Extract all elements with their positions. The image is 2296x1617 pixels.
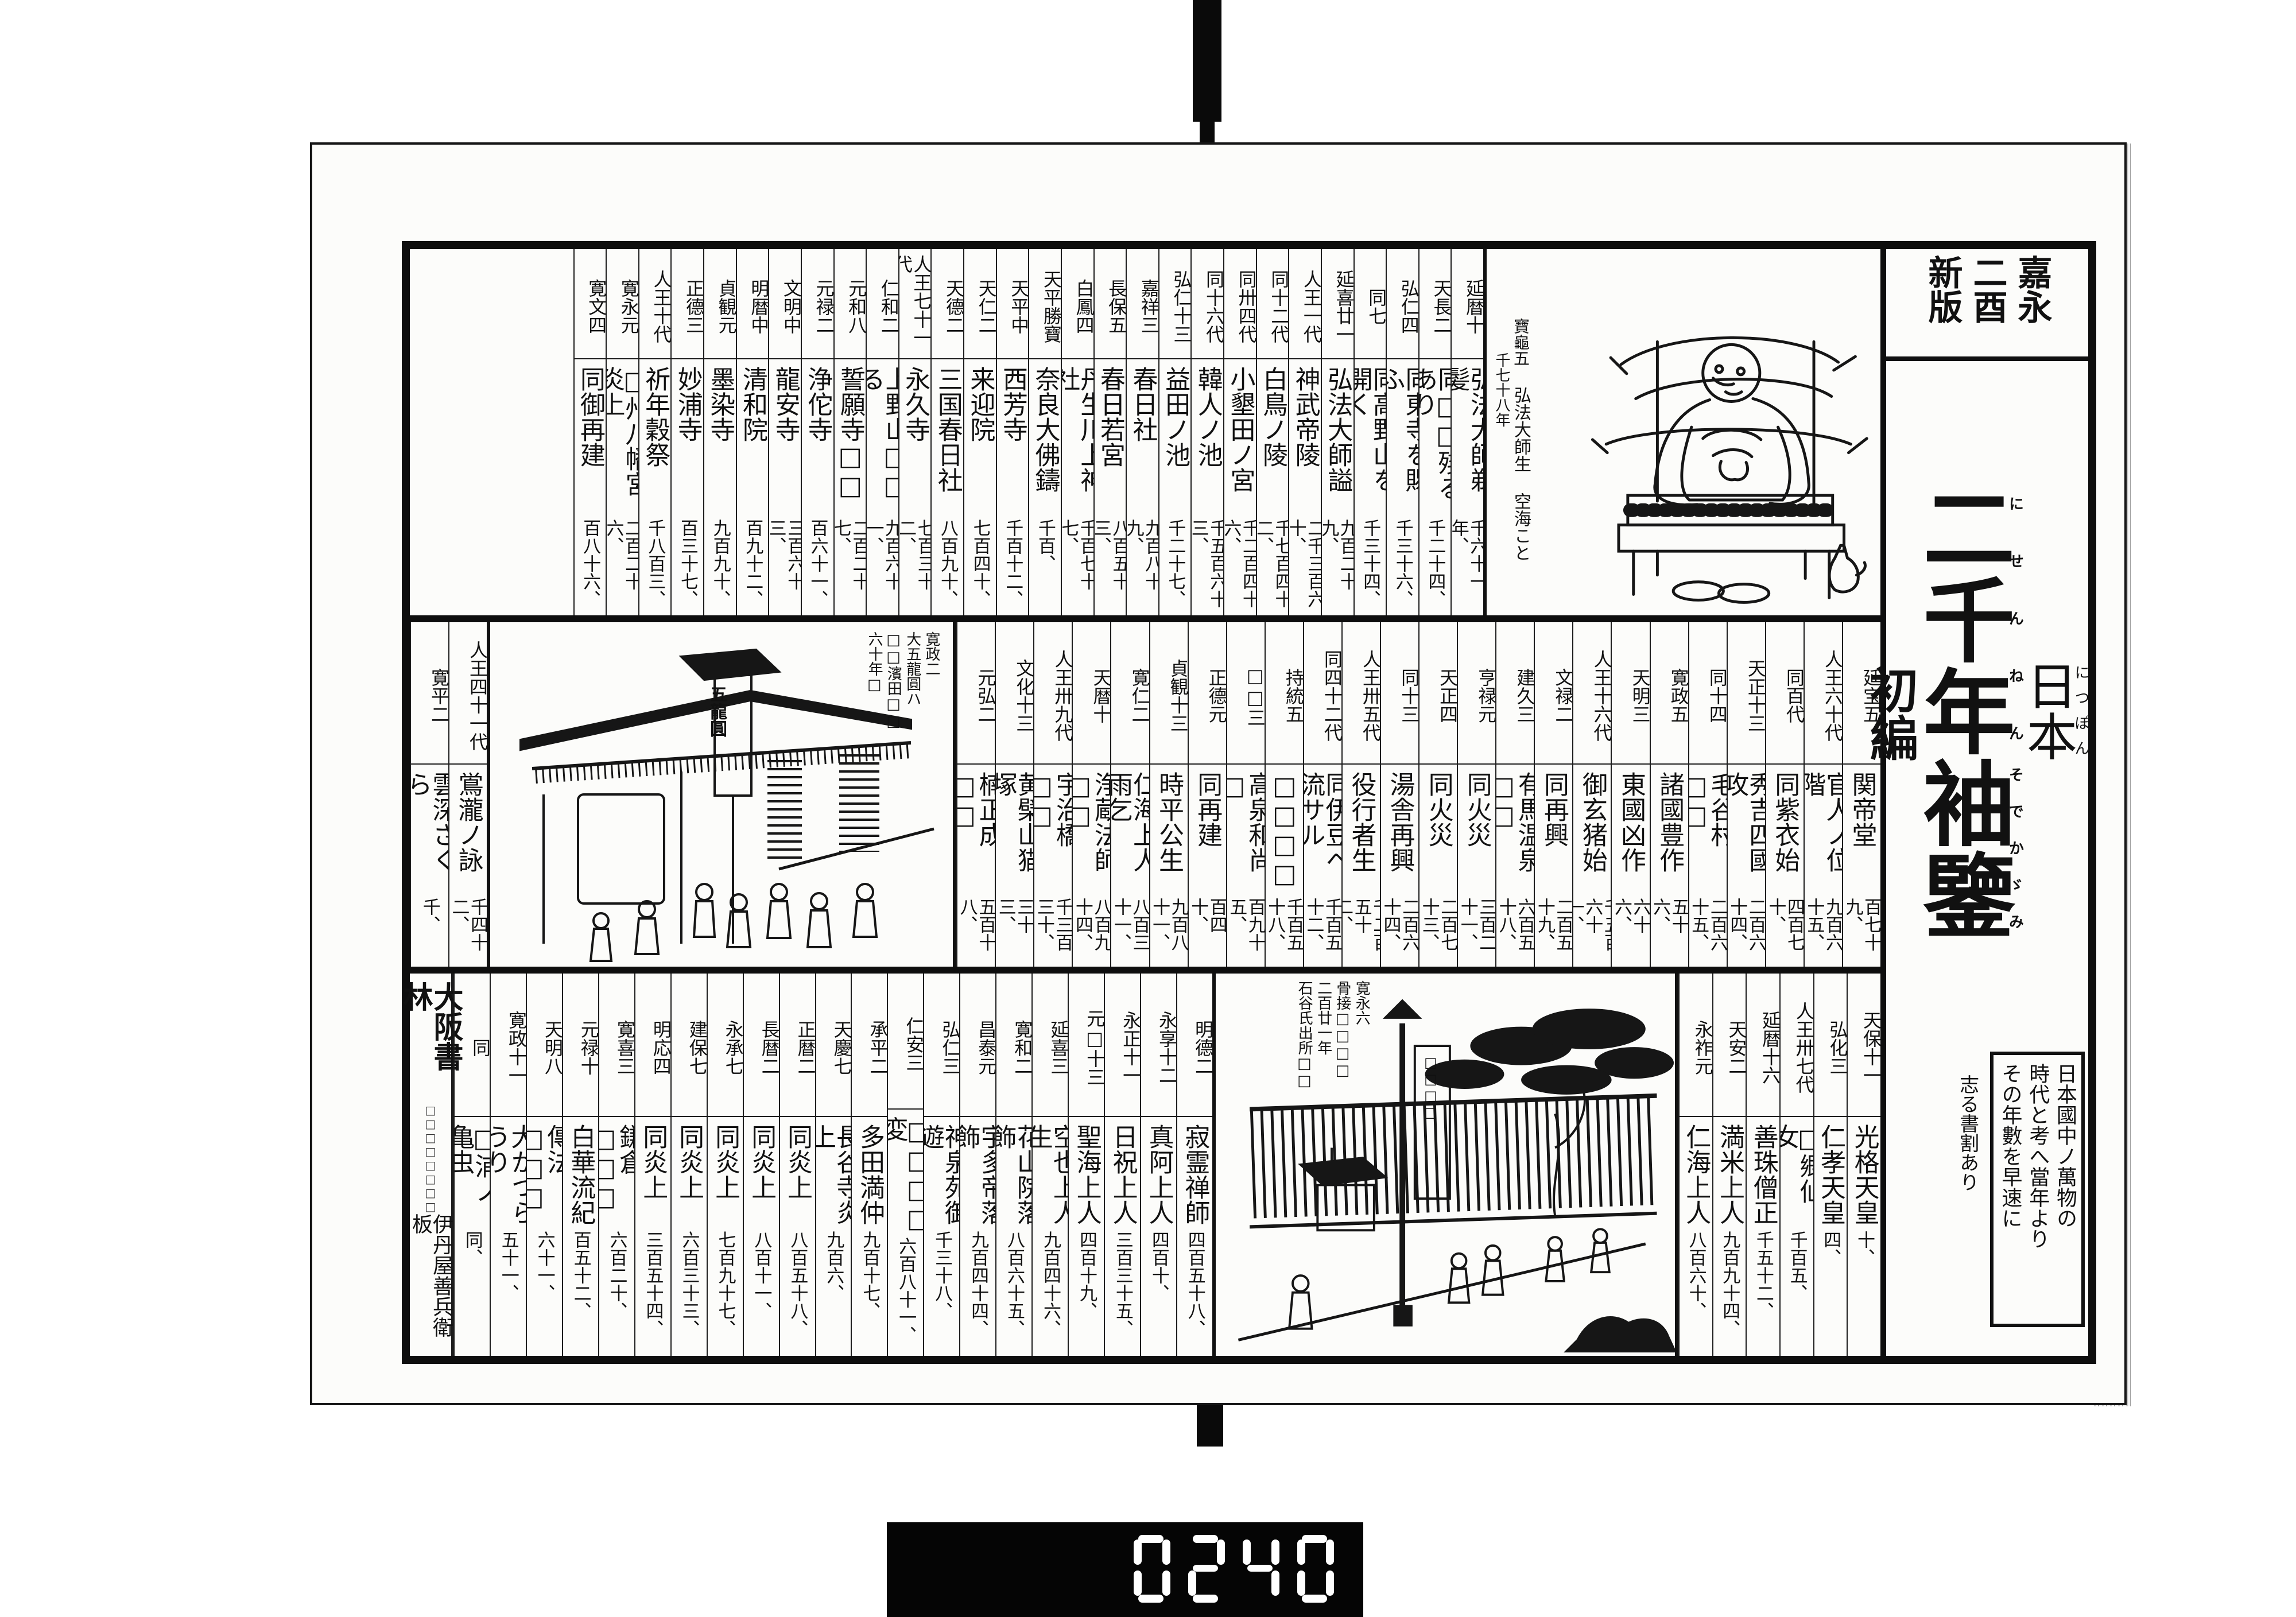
chronology-column: 同十三 湯舎再興 二百六十四、 <box>1380 622 1418 967</box>
column-entry: 永久寺 <box>902 359 928 515</box>
column-years: 千二百四十六、 <box>1223 515 1256 615</box>
column-era: 天安二 <box>1713 974 1746 1117</box>
column-era: 弘化三 <box>1814 974 1847 1117</box>
chronology-column: 天明三 東國凶作 六十六、 <box>1611 622 1649 967</box>
column-era: 正德元 <box>1189 622 1226 765</box>
column-years: 二百五十九、 <box>1535 894 1572 967</box>
column-entry: 清和院 <box>740 359 765 515</box>
column-entry: 宇多帝落飾 <box>959 1117 995 1227</box>
column-era: 貞観元 <box>704 249 736 359</box>
chronology-column: 天德二 三国春日社 八百九十、 <box>930 249 963 615</box>
column-entry: 東國凶作 <box>1618 765 1643 894</box>
chronology-column: 文禄二 同再興 二百五十九、 <box>1534 622 1572 967</box>
chronology-column: 文明中 龍安寺 三百六十三、 <box>768 249 801 615</box>
column-era: 人王卅五代 <box>1343 622 1380 765</box>
column-era: 天暦十 <box>1073 622 1110 765</box>
shop-sign: 五龍圓 <box>704 685 729 737</box>
figure-caption: 寶龜五 弘法大師生 空海こと 千七十八年 <box>1492 318 1530 615</box>
column-entry: 雲深さくら <box>410 765 448 894</box>
column-years: 八百六十五、 <box>1004 1227 1023 1356</box>
column-era: 同十六代 <box>1192 249 1223 359</box>
chronology-column: 明暦中 清和院 百九十二、 <box>736 249 769 615</box>
column-entry: 龍安寺 <box>773 359 798 515</box>
column-entry: 春日社 <box>1130 359 1155 515</box>
column-entry: 神泉苑御遊 <box>923 1117 959 1227</box>
column-era: 延暦十六 <box>1747 974 1779 1117</box>
publisher-seller: 伊丹屋善兵衛板 <box>410 1213 451 1356</box>
chronology-column: 永享十二 真阿上人 四百十、 <box>1140 974 1176 1356</box>
column-years: 九百八十一、 <box>1150 894 1188 967</box>
chronology-column: 天保十一 光格天皇 十、 <box>1847 974 1880 1356</box>
column-years: 四百七十、 <box>1766 894 1804 967</box>
column-entry: 宇治橋□□ <box>1033 765 1072 894</box>
column-entry: 神武帝陵 <box>1293 359 1318 515</box>
edition-box-line: 二酉 <box>1970 255 2004 356</box>
column-entry: 官人ノ位階 <box>1804 765 1842 894</box>
column-entry: 同御再建 <box>577 359 603 515</box>
microfilm-scan: 嘉永 二酉 新版 日本につぽん 二千年にせんねん袖鑒そでかゞみ 初編 日本國中ノ… <box>0 0 2296 1617</box>
chronology-column: 寛仁二 仁海上人雨乞 八百三十一、 <box>1110 622 1149 967</box>
chronology-column: 貞観元 墨染寺 九百九十、 <box>703 249 736 615</box>
frame-counter-digits <box>887 1522 1363 1617</box>
chronology-column: 嘉祥三 春日社 九百八十九、 <box>1126 249 1158 615</box>
column-era: 天長二 <box>1420 249 1451 359</box>
column-entry: 湯舎再興 <box>1387 765 1413 894</box>
chronology-column: 元禄十 白華流紀 百五十二、 <box>562 974 598 1356</box>
chronology-column: 正德三 妙浦寺 百三十七、 <box>670 249 703 615</box>
column-entry: 善珠僧正 <box>1751 1117 1776 1227</box>
shop-captions: 寛政二 大五龍圓ハ □□濱田□□ 六十年□ <box>866 631 939 730</box>
chronology-column: 人王四十一代 鴬瀧ノ詠 千四十二、 <box>448 622 487 967</box>
garden-illustration: 寛永六 骨接□□□□ 二百廿一年 石谷氏出所□□ □□□□ <box>1212 974 1678 1356</box>
chronology-column: 寛政十一 大かつらうり 五十一、 <box>490 974 526 1356</box>
column-era: 永正十一 <box>1105 974 1140 1117</box>
printed-frame: 嘉永 二酉 新版 日本につぽん 二千年にせんねん袖鑒そでかゞみ 初編 日本國中ノ… <box>402 241 2096 1364</box>
column-era: 弘仁十三 <box>1159 249 1191 359</box>
column-years: 四百十、 <box>1149 1227 1168 1356</box>
figure-caption-years: 千七十八年 <box>1493 352 1510 427</box>
column-era: 天德二 <box>932 249 963 359</box>
columns-middle-left: 人王四十一代 鴬瀧ノ詠 千四十二、 寛平二 雲深さくら 千、 <box>410 622 487 967</box>
chronology-column: 元□十三 聖海上人 四百十九、 <box>1068 974 1104 1356</box>
band-bottom: 天保十一 光格天皇 十、 弘化三 仁孝天皇 四、 人王卅七代 □郷仙女 千百五、… <box>410 974 1880 1356</box>
chronology-column: 永祚元 仁海上人 八百六十、 <box>1678 974 1712 1356</box>
column-years: 三百二十一、 <box>1458 894 1495 967</box>
column-entry: 同伊豆ヘ流サル <box>1303 765 1341 894</box>
chronology-column: 長保五 春日若宮 八百五十三、 <box>1093 249 1126 615</box>
column-years: 千三百三十、 <box>1034 894 1072 967</box>
column-era: 人王六十代 <box>1805 622 1842 765</box>
note-line: その年數を早速に <box>1999 1063 2021 1316</box>
column-years: 千二十四、 <box>1426 515 1445 615</box>
column-era: 元禄二 <box>802 249 833 359</box>
column-era: 正暦二 <box>780 974 815 1117</box>
column-era: 明德二 <box>1177 974 1212 1117</box>
column-entry: 上野山□□る <box>866 359 898 515</box>
shop-caption-line: 大五龍圓ハ <box>904 631 920 730</box>
band-separator <box>410 967 1880 974</box>
column-years: 百七十九、 <box>1843 894 1880 967</box>
chronology-column: 弘仁十三 益田ノ池 千二十七、 <box>1158 249 1191 615</box>
chronology-column: 寛文四 同御再建 百八十六、 <box>573 249 606 615</box>
garden-captions: 寛永六 骨接□□□□ 二百廿一年 石谷氏出所□□ <box>1296 980 1369 1089</box>
column-era: 寛仁二 <box>1111 622 1149 765</box>
column-entry: □□□□ <box>1271 765 1297 894</box>
chronology-column: 寛永元 □州八幡宮炎上 二百二十六、 <box>606 249 638 615</box>
column-entry: 有馬温泉□□ <box>1495 765 1534 894</box>
column-era: 嘉祥三 <box>1127 249 1158 359</box>
column-years: 千八百三、 <box>646 515 665 615</box>
chronology-column: 正德元 同再建 百四十、 <box>1188 622 1226 967</box>
column-entry: 鴬瀧ノ詠 <box>456 765 481 894</box>
column-entry: □郷仙女 <box>1779 1117 1813 1227</box>
column-years: 千五百六十一、 <box>1572 894 1611 967</box>
column-era: 天正十三 <box>1728 622 1765 765</box>
title-edition: 初編 <box>1866 665 1914 762</box>
chronology-column: 元和八 誓願寺□□ 二百二十七、 <box>833 249 866 615</box>
book-page-spread: 嘉永 二酉 新版 日本につぽん 二千年にせんねん袖鑒そでかゞみ 初編 日本國中ノ… <box>310 142 2127 1405</box>
column-entry: 丹生川上神社 <box>1061 359 1093 515</box>
chronology-column: 永正十一 日祝上人 三百三十五、 <box>1104 974 1140 1356</box>
column-era: 元□十三 <box>1069 974 1104 1117</box>
chronology-column: 人王十六代 御玄猪始 千五百六十一、 <box>1572 622 1611 967</box>
chronology-column: 亨禄元 同火災 三百二十一、 <box>1457 622 1495 967</box>
column-entry: 同東寺を賜ふ <box>1386 359 1418 515</box>
chronology-column: 同四十二代 同伊豆ヘ流サル 千百五十二、 <box>1303 622 1341 967</box>
column-years: 七百四十、 <box>971 515 990 615</box>
column-years: 四百五十八、 <box>1185 1227 1204 1356</box>
edition-box-line: 嘉永 <box>2015 255 2049 356</box>
shop-illustration: 五龍圓 寛政二 大五龍圓ハ □□濱田□□ 六十年□ <box>487 622 956 967</box>
column-era: 寛文四 <box>575 249 606 359</box>
chronology-column: 延暦十 弘法大師剃髪 千六十一年、 <box>1450 249 1483 615</box>
column-era: 天平勝寶 <box>1029 249 1061 359</box>
column-entry: 祈年穀祭 <box>642 359 668 515</box>
column-entry: □□□□変 <box>887 1110 923 1234</box>
chronology-column: 人王七十一代 永久寺 七百三十二、 <box>898 249 931 615</box>
column-years: 二百二十六、 <box>606 515 638 615</box>
chronology-column: 白鳳四 丹生川上神社 千百七十七、 <box>1061 249 1093 615</box>
chronology-column: 寛政五 諸國豊作 五十六、 <box>1650 622 1688 967</box>
column-years: 千三十八、 <box>933 1227 952 1356</box>
column-entry: 高泉和尚□ <box>1226 765 1265 894</box>
column-era: 文化十三 <box>996 622 1033 765</box>
column-entry: 同炎上 <box>676 1117 701 1227</box>
column-entry: 仁孝天皇 <box>1818 1117 1843 1227</box>
garden-caption-line: 骨接□□□□ <box>1335 980 1350 1089</box>
chronology-column: 天暦十 浄蔵法師□□ 八百九十四、 <box>1072 622 1110 967</box>
column-entry: 弘法大師剃髪 <box>1450 359 1483 515</box>
monk-illustration: 寶龜五 弘法大師生 空海こと 千七十八年 <box>1483 249 1880 615</box>
column-era: 人王七十一代 <box>899 249 931 359</box>
column-era: 同十二代 <box>1257 249 1289 359</box>
chronology-column: 同十四 毛谷村□□ 二百六十五、 <box>1688 622 1727 967</box>
chronology-column: 天長二 同□□殘るあり 千二十四、 <box>1418 249 1451 615</box>
frame-counter <box>887 1522 1363 1617</box>
column-years: 千百十二、 <box>1003 515 1022 615</box>
title-strip: 嘉永 二酉 新版 日本につぽん 二千年にせんねん袖鑒そでかゞみ 初編 日本國中ノ… <box>1880 249 2088 1356</box>
column-era: 長保五 <box>1095 249 1126 359</box>
column-years: 四百十九、 <box>1077 1227 1096 1356</box>
chronology-column: 人王六十代 官人ノ位階 九百六十五、 <box>1804 622 1842 967</box>
column-entry: 浄蔵法師□□ <box>1072 765 1110 894</box>
column-entry: 同火災 <box>1464 765 1490 894</box>
column-years: 二百七十三、 <box>1420 894 1457 967</box>
column-years: 六百五十八、 <box>1496 894 1534 967</box>
column-years: 八百十一、 <box>752 1227 771 1356</box>
column-entry: 大かつらうり <box>490 1117 526 1227</box>
edition-box-line: 新版 <box>1925 255 1960 356</box>
columns-top: 延暦十 弘法大師剃髪 千六十一年、 天長二 同□□殘るあり 千二十四、 弘仁四 … <box>573 249 1483 615</box>
garden-banner: □□□□ <box>1422 1054 1439 1120</box>
column-era: 正德三 <box>672 249 703 359</box>
chronology-column: 弘仁四 同東寺を賜ふ 千三十六、 <box>1386 249 1418 615</box>
column-years: 六十六、 <box>1612 894 1649 967</box>
publisher-name: 大阪書林 <box>400 974 461 1094</box>
columns-bottom-left: 明德二 寂霊禅師 四百五十八、 永享十二 真阿上人 四百十、 永正十一 日祝上人… <box>453 974 1212 1356</box>
column-years: 百五十二、 <box>571 1227 590 1356</box>
chronology-column: 仁安三 □□□□変 六百八十一、 <box>887 974 923 1356</box>
chronology-column: 天慶七 長谷寺炎上 九百六、 <box>815 974 851 1356</box>
column-years: 百九十五、 <box>1227 894 1265 967</box>
column-era: 永祚元 <box>1680 974 1712 1117</box>
column-entry: 聖海上人 <box>1074 1117 1099 1227</box>
column-entry: 弘法大師謚 <box>1325 359 1350 515</box>
column-era: 人王卅七代 <box>1781 974 1813 1117</box>
chronology-column: 明応四 同炎上 三百五十四、 <box>634 974 670 1356</box>
chronology-column: 弘仁三 神泉苑御遊 千三十八、 <box>923 974 959 1356</box>
column-years: 千二百五十二、 <box>1341 894 1380 967</box>
title-note-box: 日本國中ノ萬物の 時代と考へ當年より その年數を早速に <box>1990 1052 2085 1327</box>
column-years: 百九十二、 <box>743 515 762 615</box>
title-main: 二千年にせんねん袖鑒そでかゞみ <box>1914 481 2022 940</box>
column-entry: 来迎院 <box>967 359 992 515</box>
column-years: 八百三十一、 <box>1111 894 1149 967</box>
column-years: 千五百六十三、 <box>1190 515 1223 615</box>
chronology-column: 天正四 同火災 二百七十三、 <box>1418 622 1457 967</box>
column-years: 千百五、 <box>1787 1227 1806 1356</box>
column-years: 九百六、 <box>824 1227 843 1356</box>
chronology-column: 正暦二 同炎上 八百五十八、 <box>779 974 815 1356</box>
column-years: 八百九十、 <box>938 515 957 615</box>
column-entry: 関帝堂 <box>1849 765 1874 894</box>
column-years: 千四十二、 <box>449 894 487 967</box>
column-entry: □浦ノ亀虫 <box>453 1117 490 1227</box>
column-era: 同四十二代 <box>1304 622 1341 765</box>
column-entry: 同炎上 <box>748 1117 774 1227</box>
column-entry: 三国春日社 <box>935 359 960 515</box>
column-entry: 満米上人 <box>1717 1117 1742 1227</box>
column-years: 三百五十四、 <box>643 1227 662 1356</box>
column-entry: 誓願寺□□ <box>837 359 863 515</box>
column-years: 六百八十一、 <box>897 1234 916 1356</box>
column-era: 文禄二 <box>1535 622 1572 765</box>
column-entry: 空也上人生 <box>1031 1117 1068 1227</box>
column-era: 天仁二 <box>964 249 996 359</box>
column-entry: 同再興 <box>1541 765 1566 894</box>
column-years: 千百七十七、 <box>1061 515 1093 615</box>
note-line: 日本國中ノ萬物の <box>2054 1063 2076 1316</box>
column-years: 四、 <box>1821 1227 1840 1356</box>
column-years: 五百十八、 <box>957 894 995 967</box>
column-years: 九百九十、 <box>711 515 730 615</box>
band-separator <box>410 615 1880 622</box>
column-entry: 同炎上 <box>785 1117 810 1227</box>
column-era: 同十三 <box>1381 622 1418 765</box>
column-era: 寛永元 <box>607 249 638 359</box>
column-era: 延暦十 <box>1452 249 1483 359</box>
chronology-column: 昌泰元 宇多帝落飾 九百四十四、 <box>959 974 995 1356</box>
column-era: □□三 <box>1227 622 1265 765</box>
column-years: 六百三十三、 <box>680 1227 699 1356</box>
band-top: 寶龜五 弘法大師生 空海こと 千七十八年 延暦十 弘法大師剃髪 千六十一年、 天… <box>410 249 1880 615</box>
column-era: 長暦二 <box>744 974 779 1117</box>
column-years: 二百二十七、 <box>833 515 866 615</box>
column-entry: 西芳寺 <box>1000 359 1025 515</box>
chronology-column: 人王卅七代 □郷仙女 千百五、 <box>1779 974 1813 1356</box>
column-entry: 同再建 <box>1194 765 1220 894</box>
chronology-column: 同 □浦ノ亀虫 同、 <box>453 974 490 1356</box>
column-era: 寛政十一 <box>491 974 526 1117</box>
chronology-column: 持統五 □□□□ 千百五十八、 <box>1265 622 1303 967</box>
note-side-line: 志る書割あり <box>1954 1075 1982 1192</box>
garden-caption-line: 二百廿一年 <box>1315 980 1331 1089</box>
chronology-column: 同十二代 白鳥ノ陵 千七百四十二、 <box>1256 249 1289 615</box>
column-years: 九百六十五、 <box>1805 894 1842 967</box>
column-era: 明応四 <box>635 974 670 1117</box>
figure-caption-alias: 空海こと <box>1511 493 1531 561</box>
column-years: 千三十六、 <box>1393 515 1412 615</box>
column-years: 九百六十一、 <box>866 515 898 615</box>
chronology-column: 長暦二 同炎上 八百十一、 <box>743 974 779 1356</box>
column-entry: 真阿上人 <box>1146 1117 1172 1227</box>
chronology-column: 天平勝寶 奈良大佛鑄 千百、 <box>1028 249 1061 615</box>
column-era: 延喜三 <box>1033 974 1068 1117</box>
column-years: 七百九十七、 <box>716 1227 735 1356</box>
column-era: 昌泰元 <box>960 974 995 1117</box>
column-era: 天正四 <box>1420 622 1457 765</box>
column-era: 天明八 <box>527 974 562 1117</box>
colophon: 大阪書林 □□□□□□□□ 伊丹屋善兵衛板 <box>410 974 453 1356</box>
column-years: 九百九十四、 <box>1720 1227 1739 1356</box>
column-entry: 時平公生 <box>1156 765 1181 894</box>
chronology-column: 元弘二 楠正成□□ 五百十八、 <box>956 622 995 967</box>
column-entry: 小墾田ノ宮 <box>1227 359 1252 515</box>
column-entry: 日祝上人 <box>1110 1117 1135 1227</box>
column-era: 天平中 <box>997 249 1029 359</box>
edition-box: 嘉永 二酉 新版 <box>1886 249 2088 361</box>
column-era: 永承七 <box>708 974 743 1117</box>
chronology-column: 天明八 傳法□□□ 六十一、 <box>526 974 562 1356</box>
column-entry: 傳法□□□ <box>526 1117 562 1227</box>
column-years: 二百六十四、 <box>1728 894 1765 967</box>
column-era: 天保十一 <box>1848 974 1880 1117</box>
column-entry: 光格天皇 <box>1852 1117 1877 1227</box>
figure-caption-name: 弘法大師生 <box>1511 386 1531 472</box>
chronology-column: 延喜三 空也上人生 九百四十六、 <box>1031 974 1068 1356</box>
column-entry: 益田ノ池 <box>1162 359 1188 515</box>
figure-caption-era: 寶龜五 <box>1511 318 1530 366</box>
column-era: 明暦中 <box>737 249 769 359</box>
column-era: 文明中 <box>769 249 801 359</box>
column-years: 千三十四、 <box>1361 515 1380 615</box>
title-area: 日本につぽん 二千年にせんねん袖鑒そでかゞみ 初編 <box>1886 361 2088 1052</box>
column-entry: 同高野山を開く <box>1353 359 1386 515</box>
column-years: 同、 <box>463 1227 482 1356</box>
column-era: 人王一代 <box>1289 249 1321 359</box>
chronology-column: 同十六代 韓人ノ池 千五百六十三、 <box>1190 249 1223 615</box>
column-era: 弘仁三 <box>924 974 959 1117</box>
column-entry: 白華流紀 <box>568 1117 593 1227</box>
column-era: 人王十六代 <box>1573 622 1611 765</box>
columns-middle: 延宝五 関帝堂 百七十九、 人王六十代 官人ノ位階 九百六十五、 同百代 同紫衣… <box>956 622 1880 967</box>
column-years: 七百三十二、 <box>898 515 931 615</box>
column-entry: 同□□殘るあり <box>1418 359 1451 515</box>
chronology-column: 建久三 有馬温泉□□ 六百五十八、 <box>1495 622 1534 967</box>
column-years: 八百五十八、 <box>788 1227 807 1356</box>
column-entry: 寂霊禅師 <box>1182 1117 1208 1227</box>
title-note-area: 日本國中ノ萬物の 時代と考へ當年より その年數を早速に 志る書割あり <box>1886 1052 2088 1356</box>
column-years: 三百六十三、 <box>768 515 801 615</box>
column-era: 寛平二 <box>411 622 448 765</box>
column-entry: 黄檗山猫塚 <box>995 765 1033 894</box>
column-entry: 韓人ノ池 <box>1195 359 1220 515</box>
chronology-column: 人王卅九代 宇治橋□□ 千三百三十、 <box>1033 622 1072 967</box>
column-entry: 毛谷村□□ <box>1688 765 1727 894</box>
column-entry: 奈良大佛鑄 <box>1033 359 1058 515</box>
column-entry: 御玄猪始 <box>1580 765 1605 894</box>
column-era: 同七 <box>1355 249 1386 359</box>
note-line: 時代と考へ當年より <box>2026 1063 2048 1316</box>
column-years: 二千三百六十、 <box>1288 515 1321 615</box>
chronology-column: 天平中 西芳寺 千百十二、 <box>996 249 1029 615</box>
chronology-column: 承平二 多田満仲 九百十七、 <box>851 974 887 1356</box>
shop-caption-line: □□濱田□□ <box>885 631 901 730</box>
chronology-column: 人王一代 神武帝陵 二千三百六十、 <box>1288 249 1321 615</box>
column-era: 元弘二 <box>957 622 995 765</box>
column-entry: 白鳥ノ陵 <box>1260 359 1285 515</box>
column-years: 千七百四十二、 <box>1256 515 1289 615</box>
column-entry: 花山院落飾 <box>995 1117 1031 1227</box>
column-entry: 鎌倉□□□ <box>598 1117 634 1227</box>
band-middle: 延宝五 関帝堂 百七十九、 人王六十代 官人ノ位階 九百六十五、 同百代 同紫衣… <box>410 622 1880 967</box>
column-years: 九百八十九、 <box>1126 515 1158 615</box>
garden-caption-line: 寛永六 <box>1353 980 1369 1089</box>
chronology-table: 寶龜五 弘法大師生 空海こと 千七十八年 延暦十 弘法大師剃髪 千六十一年、 天… <box>410 249 1880 1356</box>
publisher-address-small: □□□□□□□□ <box>424 1094 437 1213</box>
column-entry: 役行者生 <box>1348 765 1374 894</box>
column-years: 九百二十九、 <box>1321 515 1353 615</box>
shop-caption-line: 六十年□ <box>866 631 882 730</box>
column-era: 人王卅九代 <box>1034 622 1072 765</box>
column-era: 貞観十三 <box>1150 622 1188 765</box>
column-years: 千五十二、 <box>1754 1227 1773 1356</box>
chronology-column: 仁和二 上野山□□る 九百六十一、 <box>866 249 898 615</box>
column-era: 人王四十一代 <box>449 622 487 765</box>
title-country: 日本につぽん <box>2023 660 2089 761</box>
chronology-column: 天正十三 秀吉四國攻 二百六十四、 <box>1727 622 1765 967</box>
column-era: 承平二 <box>852 974 887 1117</box>
column-era: 同百代 <box>1766 622 1804 765</box>
column-years: 二百六十五、 <box>1689 894 1727 967</box>
column-era: 永享十二 <box>1141 974 1176 1117</box>
column-years: 八百五十三、 <box>1093 515 1126 615</box>
chronology-column: 元禄二 浄佗寺 百六十一、 <box>801 249 833 615</box>
chronology-column: 同七 同高野山を開く 千三十四、 <box>1353 249 1386 615</box>
column-era: 白鳳四 <box>1062 249 1093 359</box>
column-years: 百六十一、 <box>808 515 827 615</box>
chronology-column: 弘化三 仁孝天皇 四、 <box>1813 974 1847 1356</box>
